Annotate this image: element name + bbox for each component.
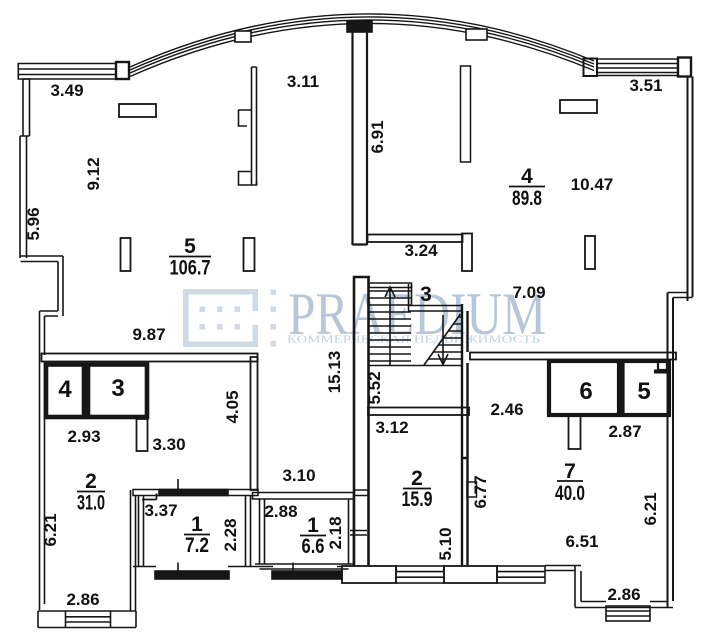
svg-text:1: 1 — [191, 513, 203, 536]
svg-text:9.87: 9.87 — [132, 325, 165, 344]
svg-text:6: 6 — [579, 378, 592, 405]
svg-text:7: 7 — [564, 460, 576, 483]
svg-text:2.88: 2.88 — [264, 502, 297, 521]
svg-text:3.12: 3.12 — [375, 418, 408, 437]
svg-text:7.2: 7.2 — [185, 534, 209, 557]
svg-text:5: 5 — [184, 235, 196, 258]
svg-text:6.21: 6.21 — [641, 492, 660, 525]
svg-text:40.0: 40.0 — [555, 482, 585, 505]
svg-text:5.10: 5.10 — [436, 527, 455, 560]
svg-text:89.8: 89.8 — [512, 187, 542, 210]
svg-text:9.12: 9.12 — [84, 157, 103, 190]
svg-text:4.05: 4.05 — [223, 390, 242, 423]
svg-text:31.0: 31.0 — [77, 492, 105, 515]
svg-text:5.52: 5.52 — [365, 371, 384, 404]
svg-text:6.91: 6.91 — [368, 120, 387, 153]
svg-text:6.77: 6.77 — [471, 475, 490, 508]
svg-text:3.49: 3.49 — [50, 81, 83, 100]
svg-text:5.96: 5.96 — [24, 207, 43, 240]
svg-text:10.47: 10.47 — [571, 175, 614, 194]
svg-text:3: 3 — [111, 375, 124, 402]
svg-text:7.09: 7.09 — [512, 283, 545, 302]
svg-text:2.28: 2.28 — [221, 518, 240, 551]
svg-text:6.51: 6.51 — [565, 532, 598, 551]
svg-text:15.9: 15.9 — [402, 488, 433, 511]
svg-text:15.13: 15.13 — [325, 351, 344, 394]
svg-text:106.7: 106.7 — [170, 257, 211, 280]
svg-text:2.46: 2.46 — [490, 400, 523, 419]
svg-text:1: 1 — [307, 514, 319, 537]
svg-text:4: 4 — [521, 165, 533, 188]
svg-text:4: 4 — [58, 376, 72, 403]
svg-text:3.30: 3.30 — [152, 435, 185, 454]
svg-text:2.86: 2.86 — [607, 585, 640, 604]
svg-text:3: 3 — [420, 283, 432, 306]
svg-text:2.86: 2.86 — [66, 590, 99, 609]
svg-text:2.18: 2.18 — [326, 516, 345, 549]
svg-text:3.37: 3.37 — [144, 501, 177, 520]
svg-text:6.21: 6.21 — [41, 513, 60, 546]
svg-text:3.51: 3.51 — [629, 76, 662, 95]
svg-text:3.11: 3.11 — [287, 72, 319, 91]
svg-text:3.10: 3.10 — [282, 466, 315, 485]
svg-text:2.93: 2.93 — [67, 427, 100, 446]
svg-text:2: 2 — [85, 470, 97, 493]
svg-text:2: 2 — [411, 467, 423, 490]
svg-text:2.87: 2.87 — [608, 422, 641, 441]
svg-text:3.24: 3.24 — [404, 241, 438, 260]
svg-text:6.6: 6.6 — [302, 535, 325, 558]
svg-text:КОММЕРЧЕСКАЯ НЕДВИЖИМОСТЬ: КОММЕРЧЕСКАЯ НЕДВИЖИМОСТЬ — [287, 334, 540, 346]
svg-text:5: 5 — [637, 378, 650, 405]
